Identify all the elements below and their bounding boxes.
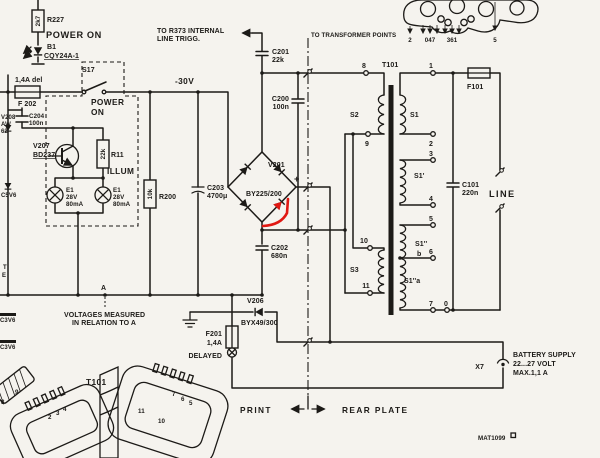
winding-s1pp-b: b: [417, 251, 421, 258]
label-t101: T101: [382, 62, 398, 69]
pin-11: 11: [362, 283, 370, 290]
value-r200: 10k: [147, 188, 154, 199]
capacitor-c204: [16, 116, 28, 122]
edge-lead-bottom: [0, 340, 16, 343]
pin-5: 5: [429, 216, 433, 223]
label-power-sw1: POWER: [91, 97, 124, 107]
doc-number: MAT1099: [478, 435, 506, 442]
frag-e: E: [2, 273, 6, 279]
drawing-pin-8: 8: [1, 399, 5, 406]
drawing-pin-11: 11: [138, 408, 145, 415]
label-line: LINE: [489, 189, 516, 199]
diode-v206: [255, 308, 263, 316]
value-c201: 22k: [272, 57, 284, 64]
type-v207: BD237: [33, 152, 55, 159]
label-c101: C101: [462, 182, 479, 189]
drawing-pin-5: 5: [189, 400, 193, 407]
label-lamp-b: E1: [113, 187, 121, 194]
winding-s1: S1: [410, 112, 419, 119]
pin-2: 2: [429, 141, 433, 148]
connector-x7: [498, 359, 509, 366]
fuse-f201: [226, 326, 238, 357]
label-c204: C204: [29, 113, 45, 120]
circuit-diagram: R227 2k7 POWER ON B1 CQY24A-1 1,4A del F…: [0, 0, 600, 458]
winding-s1pp-a: S1''a: [404, 278, 420, 285]
winding-s1pp: S1'': [415, 241, 428, 248]
label-r11: R11: [111, 152, 124, 159]
label-v207: V207: [33, 143, 50, 150]
connector-pin-5: 5: [493, 37, 497, 44]
label-minus30v: -30V: [175, 76, 194, 86]
connector-pin-2: 2: [408, 37, 412, 44]
connector-pins-361: 361: [447, 37, 458, 44]
label-v201: V201: [268, 162, 285, 169]
label-c200: C200: [272, 96, 289, 103]
value-r11: 22k: [100, 148, 107, 159]
label-x7: X7: [475, 364, 484, 371]
label-c202: C202: [271, 245, 288, 252]
drawing-pin-4: 4: [63, 406, 67, 413]
led-b1: [24, 47, 42, 58]
current-lamp-a: 80mA: [66, 201, 84, 208]
frag-c3v6-bottom: C3V6: [0, 345, 16, 351]
zener-c5v6: [5, 183, 12, 189]
t101-illustration: [0, 355, 234, 458]
frag-c5v6: C5V6: [1, 193, 17, 199]
pin-7: 7: [429, 301, 433, 308]
label-s17: S17: [82, 67, 95, 74]
switch-s17: [82, 82, 106, 94]
fuse-f101: [468, 68, 490, 78]
volt-lamp-b: 28V: [113, 194, 125, 201]
frag-v208: V208: [1, 115, 16, 121]
drawing-pin-3: 3: [56, 410, 60, 417]
type-b1: CQY24A-1: [44, 53, 79, 60]
drawing-pin-2: 2: [48, 414, 52, 421]
pin-9: 9: [365, 141, 369, 148]
frag-t: T: [3, 265, 7, 271]
lamp-e1-left: [47, 187, 63, 203]
drawing-pin-9: 9: [15, 389, 19, 396]
drawing-pin-7: 7: [172, 391, 176, 398]
drawing-pin-6: 6: [181, 396, 185, 403]
pin-6: 6: [429, 249, 433, 256]
note-meas-1: VOLTAGES MEASURED: [64, 312, 145, 319]
note-r373-1: TO R373 INTERNAL: [157, 28, 225, 35]
battery-note-1: BATTERY SUPPLY: [513, 352, 576, 359]
pin-1: 1: [429, 63, 433, 70]
pin-8: 8: [362, 63, 366, 70]
pin-0: 0: [444, 301, 448, 308]
drawing-pin-10: 10: [158, 418, 166, 425]
fuse-f202: [15, 86, 40, 98]
pin-4: 4: [429, 196, 433, 203]
volt-lamp-a: 28V: [66, 194, 78, 201]
note-r373-2: LINE TRIGG.: [157, 36, 200, 43]
polarity-plus: +: [294, 174, 300, 184]
winding-s1p: S1': [414, 173, 425, 180]
note-meas-2: IN RELATION TO A: [72, 320, 136, 327]
type-v206: BYX49/300: [241, 320, 278, 327]
battery-note-2: 22...27 VOLT: [513, 361, 556, 368]
label-r200: R200: [159, 194, 176, 201]
frag-aw: AW: [1, 122, 11, 128]
rating-f201: 1,4A: [207, 340, 222, 347]
label-c203: C203: [207, 185, 224, 192]
schematic-page: R227 2k7 POWER ON B1 CQY24A-1 1,4A del F…: [0, 0, 600, 458]
label-power-sw2: ON: [91, 107, 104, 117]
value-c101: 220n: [462, 190, 478, 197]
current-lamp-b: 80mA: [113, 201, 131, 208]
label-rear-plate: REAR PLATE: [342, 405, 408, 415]
label-f201: F201: [206, 331, 222, 338]
winding-s2: S2: [350, 112, 359, 119]
winding-s3: S3: [350, 267, 359, 274]
label-v206: V206: [247, 298, 264, 305]
highlight-marking: [263, 199, 288, 226]
drawing-t101-label: T101: [86, 377, 107, 387]
edge-lead-top: [0, 313, 16, 316]
connector-pins-047: 047: [425, 37, 436, 44]
pin-10: 10: [360, 238, 368, 245]
value-c200: 100n: [273, 104, 289, 111]
lamp-e1-right: [95, 187, 111, 203]
frag-62: 62: [1, 129, 8, 135]
frag-c3v6-top: C3V6: [0, 318, 16, 324]
doc-symbol: [511, 433, 516, 438]
type-v201: BY225/200: [246, 191, 282, 198]
value-c202: 680n: [271, 253, 287, 260]
label-power-on-led: POWER ON: [46, 30, 102, 40]
pin-3: 3: [429, 151, 433, 158]
value-c204: 100n: [29, 120, 44, 127]
note-to-transformer: TO TRANSFORMER POINTS: [311, 32, 396, 39]
label-f101: F101: [467, 84, 483, 91]
note-f201: DELAYED: [188, 353, 222, 360]
label-r227: R227: [47, 17, 64, 24]
label-c201: C201: [272, 49, 289, 56]
battery-note-3: MAX.1,1 A: [513, 370, 548, 377]
transformer-points-connector: [404, 0, 538, 33]
rating-f202: 1,4A del: [15, 77, 42, 84]
label-b1: B1: [47, 44, 56, 51]
label-illum: ILLUM: [107, 166, 134, 176]
value-r227: 2k7: [35, 15, 42, 26]
label-node-a: A: [101, 285, 106, 292]
value-c203: 4700μ: [207, 193, 227, 200]
label-f202: F 202: [18, 101, 36, 108]
label-lamp-a: E1: [66, 187, 74, 194]
label-print: PRINT: [240, 405, 272, 415]
contact-line-top: [496, 168, 505, 177]
